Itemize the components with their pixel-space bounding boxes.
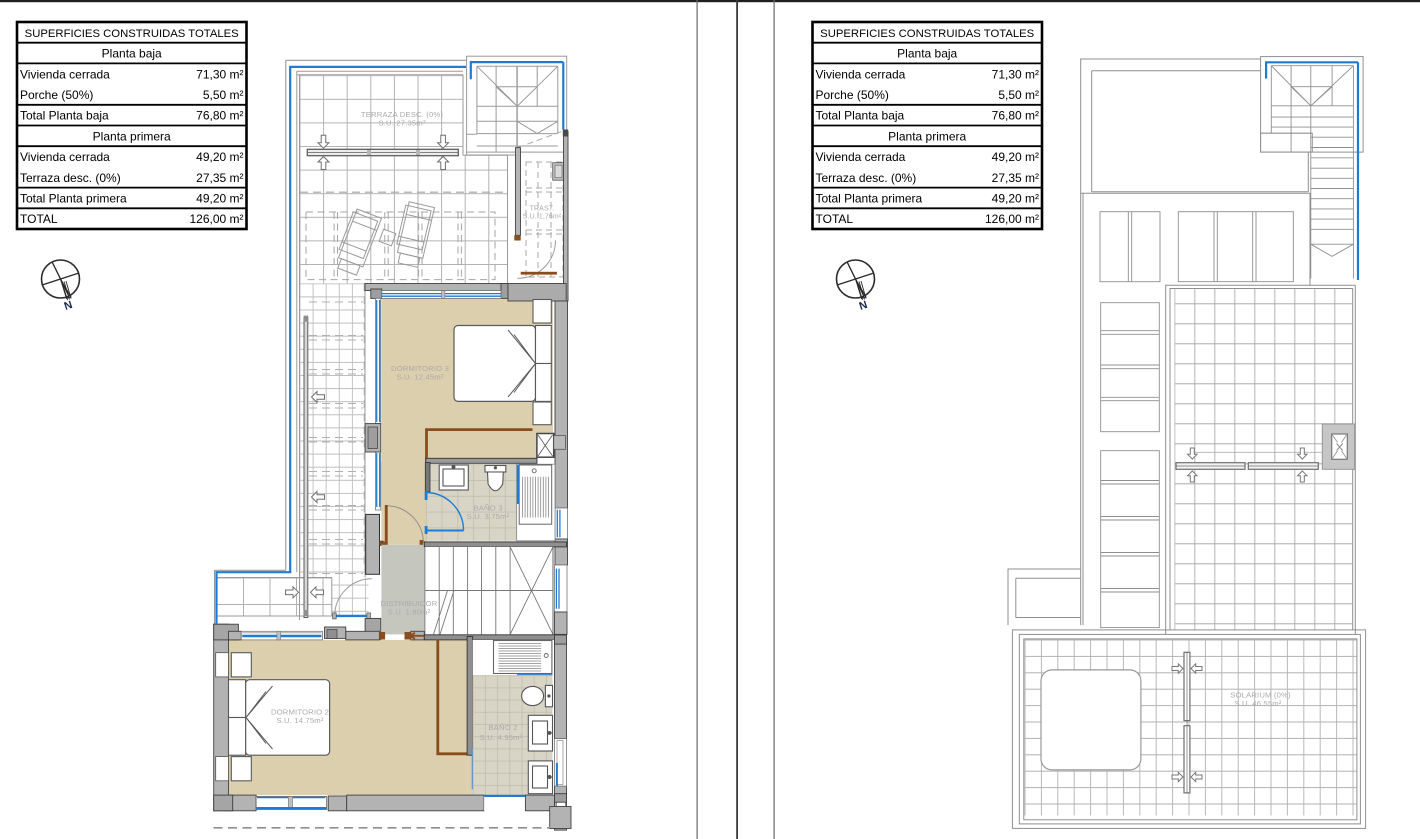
svg-text:TRAST.: TRAST.: [530, 206, 555, 213]
svg-text:S.U. 4.95m²: S.U. 4.95m²: [480, 733, 523, 742]
svg-text:S.U. 1,76m²: S.U. 1,76m²: [523, 214, 562, 221]
svg-text:S.U. 3.75m²: S.U. 3.75m²: [467, 512, 510, 521]
svg-text:S.U. 14.75m²: S.U. 14.75m²: [276, 716, 323, 725]
svg-text:S.U. 12.45m²: S.U. 12.45m²: [396, 373, 443, 382]
svg-text:BAÑO 2: BAÑO 2: [488, 723, 517, 732]
svg-text:S.U. 27,35m²: S.U. 27,35m²: [378, 119, 425, 128]
svg-text:S.U. 46.55m²: S.U. 46.55m²: [1234, 699, 1281, 708]
svg-text:S.U. 1.80m²: S.U. 1.80m²: [388, 608, 431, 617]
